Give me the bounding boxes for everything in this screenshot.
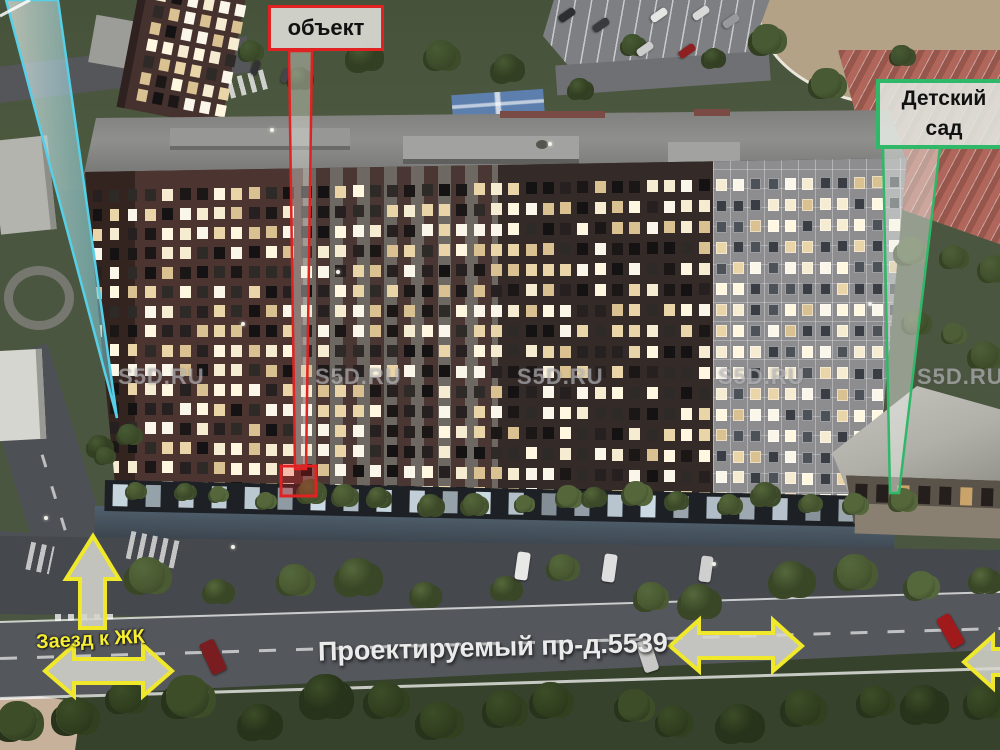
kindergarten-label-line1: Детский — [902, 84, 987, 114]
offscreen-callout-wedge — [6, 0, 117, 418]
object-label-text: объект — [288, 15, 365, 41]
object-highlight-box — [281, 466, 316, 496]
kindergarten-callout-label: Детский сад — [876, 79, 1000, 149]
kindergarten-pointer-wedge — [883, 147, 940, 493]
double-arrow-right-partial — [964, 636, 1000, 688]
object-callout-label: объект — [268, 5, 384, 51]
double-arrow-mid — [670, 620, 802, 671]
up-arrow — [66, 536, 119, 628]
annotated-model-photo: S5D.RUS5D.RUS5D.RUS5D.RUS5D.RU объект Де… — [0, 0, 1000, 750]
kindergarten-label-line2: сад — [902, 114, 987, 144]
object-pointer-band — [289, 51, 312, 469]
